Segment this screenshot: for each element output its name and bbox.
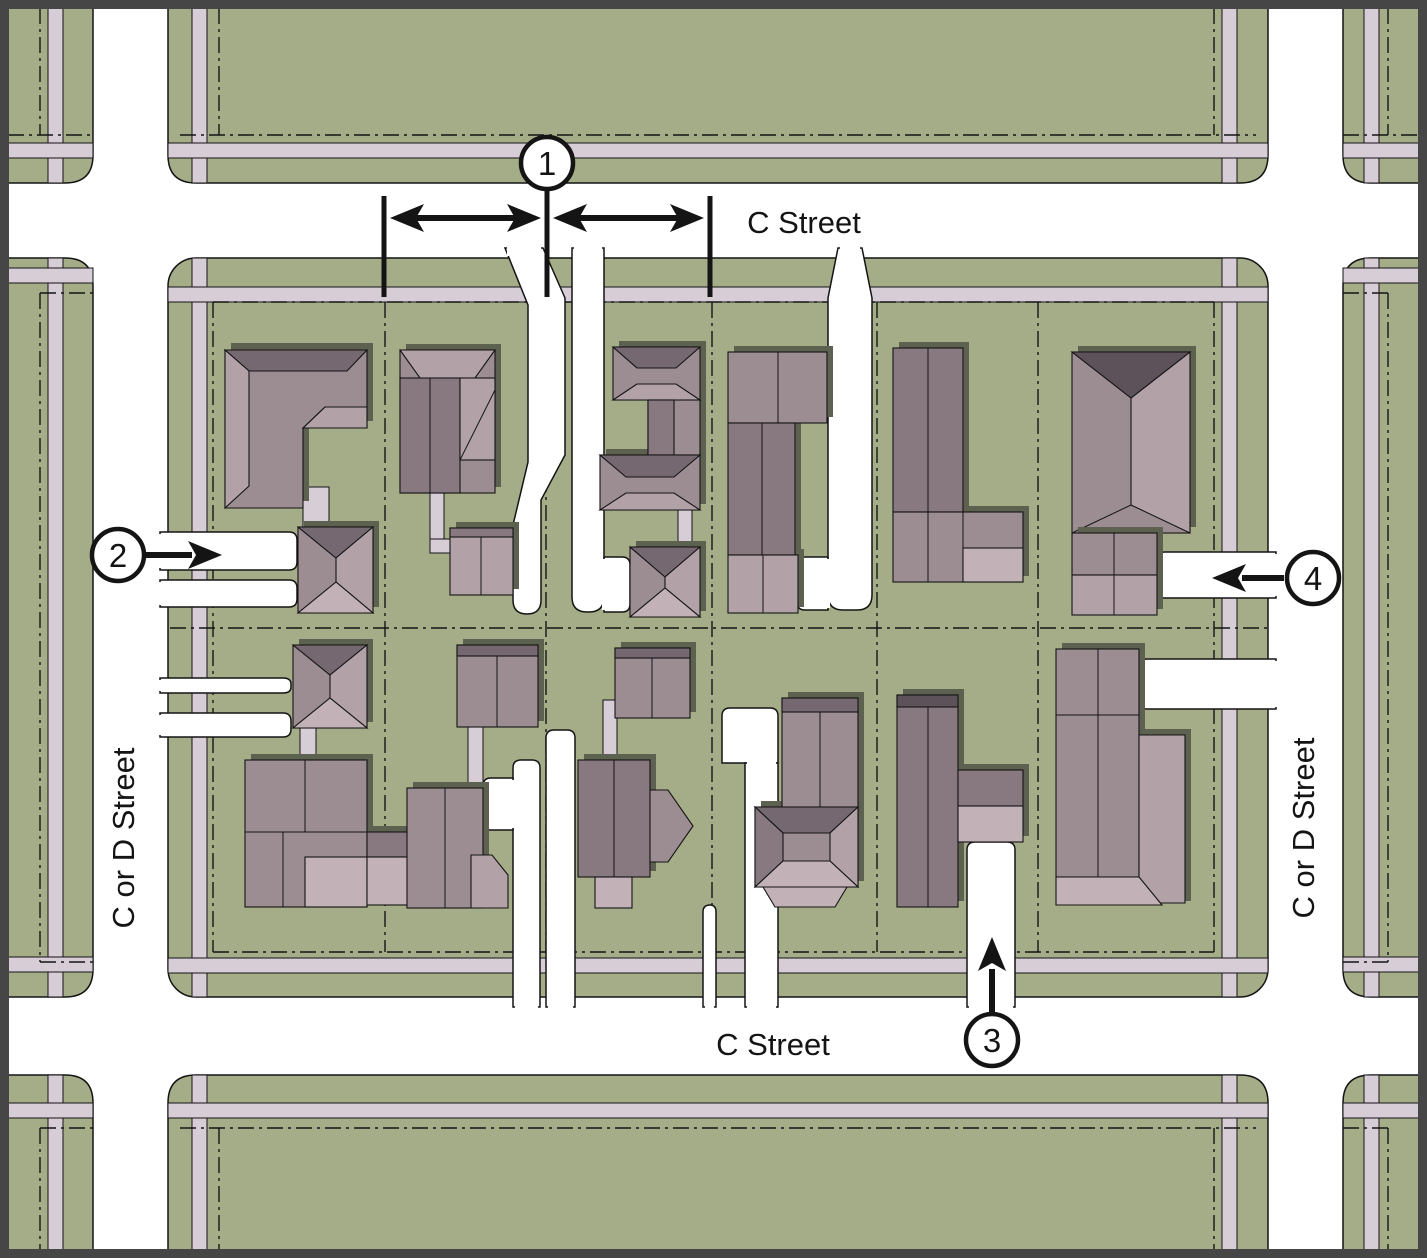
callout-3-number: 3 bbox=[983, 1022, 1001, 1059]
driveway-left-upper bbox=[160, 532, 297, 570]
site-plan-figure: 1 2 3 4 C Street C Street C or D Street … bbox=[0, 0, 1427, 1258]
street-label-left: C or D Street bbox=[106, 747, 141, 928]
block-right-mid bbox=[1343, 258, 1419, 997]
driveway-bottom-flag-lane bbox=[703, 905, 716, 1007]
driveway-left-lower-1 bbox=[160, 678, 291, 693]
driveway-bottom-1b bbox=[546, 730, 575, 1007]
driveway-top-2-court bbox=[604, 557, 630, 612]
callout-1-number: 1 bbox=[538, 145, 556, 182]
callout-1: 1 bbox=[521, 137, 573, 189]
driveway-top-3 bbox=[828, 248, 872, 610]
site-plan-diagram: 1 2 3 4 C Street C Street C or D Street … bbox=[0, 0, 1427, 1258]
callout-2-number: 2 bbox=[109, 537, 127, 574]
street-label-right: C or D Street bbox=[1286, 737, 1321, 918]
block-bottom-right-corner bbox=[1343, 1075, 1419, 1250]
driveway-bottom-2-court bbox=[722, 708, 778, 763]
driveway-bottom-1a bbox=[513, 760, 540, 1007]
callout-4-number: 4 bbox=[1304, 560, 1322, 597]
block-bottom-main bbox=[168, 1075, 1268, 1250]
driveway-left-upper-2 bbox=[160, 580, 297, 607]
street-label-bottom: C Street bbox=[716, 1027, 830, 1062]
driveway-left-lower-2 bbox=[160, 713, 291, 737]
driveway-top-2 bbox=[572, 248, 604, 612]
driveway-right-lower bbox=[1139, 659, 1276, 709]
street-label-top: C Street bbox=[747, 205, 861, 240]
building-hip-cottage-midleft bbox=[293, 639, 373, 728]
